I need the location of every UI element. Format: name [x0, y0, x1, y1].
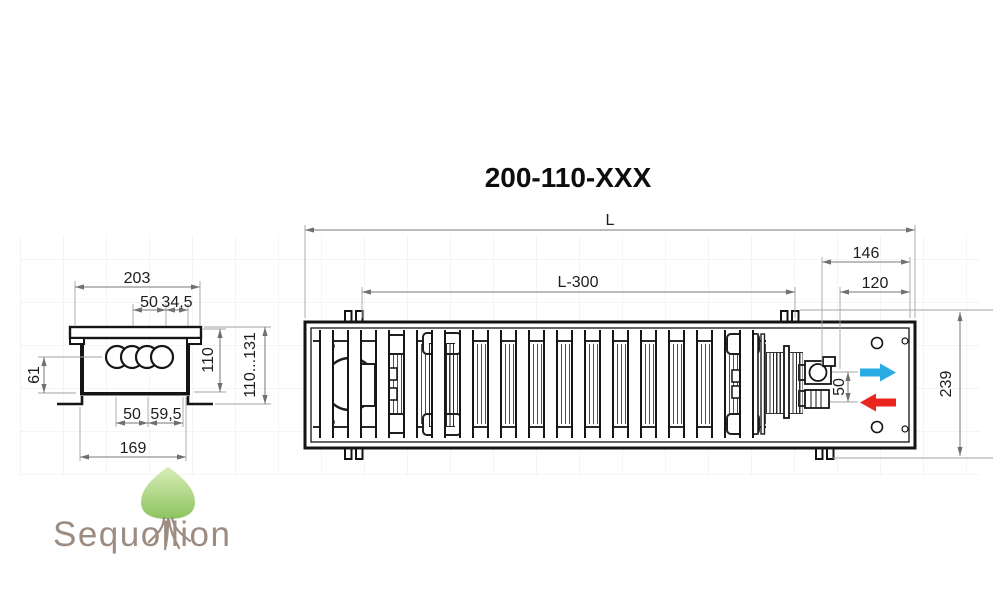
dim-top-width: 203: [124, 271, 151, 287]
model-title: 200-110-XXX: [485, 162, 652, 194]
dim-connection-inner: 120: [862, 276, 889, 292]
exchanger-fin-stub-right: [789, 352, 803, 414]
side-view-geometry: [57, 327, 213, 404]
exchanger-fin-stub-left: [766, 352, 784, 414]
dim-tube-edge-bottom: 59,5: [150, 407, 181, 423]
dim-body-height: 110: [201, 347, 217, 373]
dim-length-overall: L: [606, 213, 615, 229]
plan-view-grille: [313, 330, 766, 438]
logo: Sequollion: [53, 465, 273, 575]
dim-tube-edge-top: 34,5: [161, 295, 192, 311]
dim-base-width: 169: [120, 441, 147, 457]
dim-pipe-spacing: 50: [832, 378, 848, 396]
dim-grille-length: L-300: [558, 275, 599, 291]
dim-tube-pitch-top: 50: [140, 295, 158, 311]
dim-connection-box: 146: [853, 246, 880, 262]
dim-width-overall: 239: [939, 371, 955, 398]
dim-depth-left: 61: [27, 366, 43, 384]
dim-tube-pitch-bottom: 50: [123, 407, 141, 423]
logo-text: Sequollion: [53, 515, 231, 555]
technical-drawing-page: 200-110-XXX 203 50 34,5 61 110 110...131…: [0, 0, 1000, 600]
dim-height-range: 110...131: [243, 332, 259, 398]
grille-slats: [313, 330, 766, 438]
